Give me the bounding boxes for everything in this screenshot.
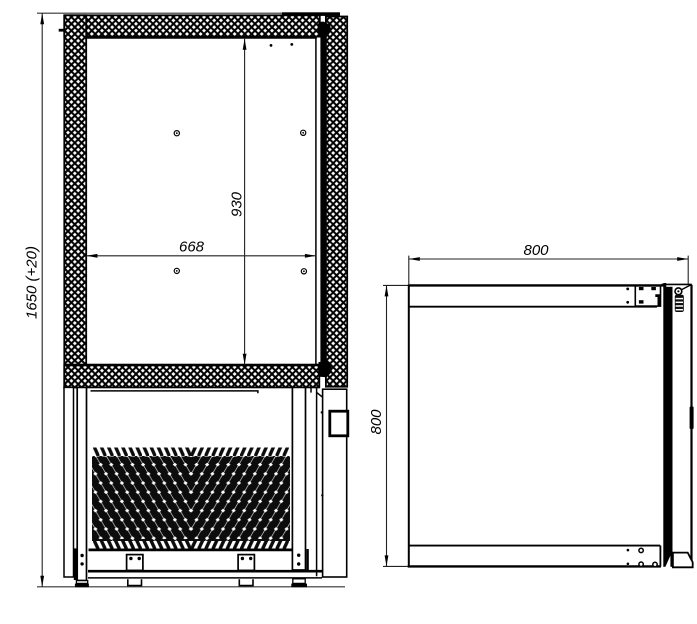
svg-text:930: 930 <box>228 191 245 217</box>
svg-text:668: 668 <box>179 238 205 255</box>
svg-text:800: 800 <box>368 409 385 435</box>
svg-text:800: 800 <box>523 242 549 259</box>
svg-text:1650 (+20): 1650 (+20) <box>24 246 41 319</box>
